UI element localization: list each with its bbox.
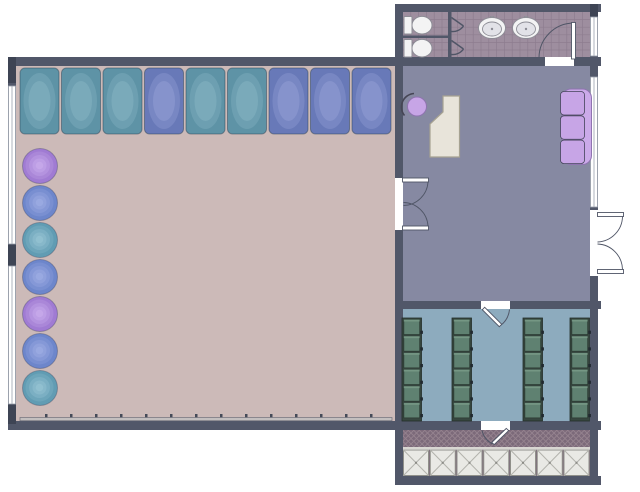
- locker-cell: [454, 336, 470, 351]
- locker-handle: [420, 381, 423, 384]
- locker-handle: [470, 347, 473, 350]
- exercise-mat: [352, 68, 391, 134]
- locker-cell: [404, 353, 420, 368]
- locker-handle: [470, 381, 473, 384]
- wall-cap-left-pier: [8, 243, 16, 267]
- entry-cubby-square: [457, 450, 482, 476]
- locker-cell: [525, 386, 541, 401]
- locker-handle: [541, 347, 544, 350]
- exercise-ball: [23, 186, 58, 221]
- exercise-ball: [23, 260, 58, 295]
- entry-cubby-square: [484, 450, 509, 476]
- mirror-bar: [20, 418, 392, 421]
- locker-column: [570, 318, 591, 421]
- exercise-ball: [23, 297, 58, 332]
- entry-cubby-square: [537, 450, 562, 476]
- floor-plan-canvas: [0, 0, 640, 492]
- locker-cell: [404, 386, 420, 401]
- locker-handle: [470, 397, 473, 400]
- entry-cubby-square: [404, 450, 429, 476]
- entry-divider-strip: [403, 447, 590, 449]
- exercise-mat: [62, 68, 101, 134]
- locker-column: [452, 318, 473, 421]
- exercise-ball: [23, 223, 58, 258]
- exercise-mat: [145, 68, 184, 134]
- sofa-cushion: [561, 92, 585, 116]
- toilet-1: [404, 16, 432, 34]
- exercise-ball: [23, 371, 58, 406]
- exercise-ball: [23, 149, 58, 184]
- locker-handle: [588, 347, 591, 350]
- locker-cell: [404, 336, 420, 351]
- exercise-mat: [103, 68, 142, 134]
- exercise-mats-row: [20, 68, 391, 134]
- locker-handle: [588, 364, 591, 367]
- window-studio-left-lower: [9, 266, 16, 404]
- locker-cell: [525, 336, 541, 351]
- locker-cell: [454, 320, 470, 335]
- locker-column: [523, 318, 544, 421]
- locker-room-floor: [403, 309, 590, 421]
- window-restroom-right: [591, 17, 598, 56]
- locker-cell: [404, 320, 420, 335]
- locker-handle: [420, 364, 423, 367]
- locker-handle: [541, 331, 544, 334]
- entry-cubby-square: [511, 450, 536, 476]
- entry-cubby-squares-row: [404, 450, 590, 476]
- wall-bottom-right-building: [395, 476, 601, 485]
- locker-handle: [420, 331, 423, 334]
- wall-top-right-building: [395, 4, 601, 12]
- locker-handle: [541, 381, 544, 384]
- locker-cell: [525, 370, 541, 385]
- entry-cubby-square: [430, 450, 455, 476]
- locker-cell: [572, 386, 588, 401]
- locker-cell: [454, 353, 470, 368]
- window-studio-left-upper: [9, 86, 16, 244]
- sofa-cushion: [561, 140, 585, 164]
- locker-handle: [470, 414, 473, 417]
- locker-handle: [541, 397, 544, 400]
- locker-cell: [572, 403, 588, 418]
- locker-cell: [454, 403, 470, 418]
- locker-handle: [470, 364, 473, 367]
- locker-cell: [525, 403, 541, 418]
- locker-handle: [541, 364, 544, 367]
- locker-cell: [525, 320, 541, 335]
- locker-cell: [525, 353, 541, 368]
- floor-plan-svg: [0, 0, 640, 492]
- sofa-three-seat: [561, 89, 592, 165]
- locker-handle: [588, 414, 591, 417]
- locker-handle: [470, 331, 473, 334]
- exercise-mat: [186, 68, 225, 134]
- locker-handle: [588, 381, 591, 384]
- stall-divider-wall: [403, 36, 448, 39]
- exercise-mat: [269, 68, 308, 134]
- entry-cubby-square: [564, 450, 589, 476]
- wall-band-bottom-studio-locker: [8, 421, 601, 430]
- toilet-2: [404, 39, 432, 57]
- sofa-cushion: [561, 116, 585, 140]
- locker-cell: [404, 370, 420, 385]
- wall-band-studio-top-restroom-bottom: [8, 57, 601, 66]
- wall-cap-bottom-left: [8, 401, 16, 424]
- locker-cell: [572, 353, 588, 368]
- exercise-mat: [311, 68, 350, 134]
- locker-room: [403, 309, 590, 421]
- locker-handle: [420, 397, 423, 400]
- locker-cell: [572, 336, 588, 351]
- wall-cap-top-left: [8, 57, 16, 83]
- locker-cell: [572, 370, 588, 385]
- locker-handle: [588, 397, 591, 400]
- locker-cell: [404, 403, 420, 418]
- locker-handle: [588, 331, 591, 334]
- locker-handle: [420, 347, 423, 350]
- exercise-ball: [23, 334, 58, 369]
- locker-handle: [420, 414, 423, 417]
- locker-cell: [572, 320, 588, 335]
- exercise-mat: [228, 68, 267, 134]
- stall-partition-wall: [448, 12, 452, 58]
- locker-cell: [454, 386, 470, 401]
- entry-vestibule: [386, 430, 623, 477]
- exercise-mat: [20, 68, 59, 134]
- locker-cell: [454, 370, 470, 385]
- locker-handle: [541, 414, 544, 417]
- locker-column: [402, 318, 423, 421]
